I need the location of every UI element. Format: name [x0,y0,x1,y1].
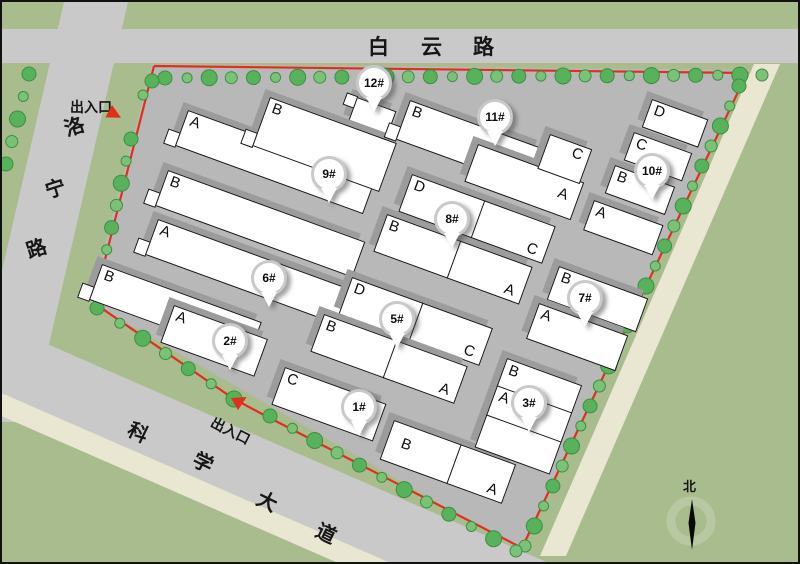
building-section-label: A [497,389,512,407]
tree-icon [402,71,414,83]
tree-icon [182,73,192,83]
tree-icon [510,545,522,557]
tree-icon [115,318,125,328]
north-label: 北 [683,480,696,493]
tree-icon [201,70,217,86]
building-divider [447,444,462,484]
tree-icon [556,460,568,472]
tree-icon [447,72,457,82]
tree-icon [732,79,746,93]
tree-icon [423,70,437,84]
tree-icon [624,71,634,81]
tree-icon [307,433,323,449]
tree-icon [105,221,119,235]
tree-icon [688,181,698,191]
tree-icon [335,70,349,84]
tree-icon [512,69,526,83]
tree-icon [18,92,28,102]
tree-icon [113,175,129,191]
tree-icon [181,362,195,376]
building-section-label: C [285,371,300,389]
tree-icon [725,101,735,111]
tree-icon [287,423,297,433]
map-pin-1: 1# [341,389,377,425]
tree-icon [263,409,277,423]
tree-icon [526,518,542,534]
tree-icon [331,447,343,459]
tree-icon [110,199,122,211]
tree-icon [467,68,483,84]
entrance-label-west: 出入口 [70,100,112,114]
tree-icon [138,90,148,100]
building-section-label: D [352,281,367,299]
building-section-label: D [652,103,667,121]
tree-icon [160,348,172,360]
building-section-label: B [270,101,285,119]
map-pin-12: 12# [356,65,392,101]
tree-icon [377,472,387,482]
map-pin-8: 8# [434,201,470,237]
tree-icon [675,198,691,214]
tree-icon [124,132,138,146]
tree-icon [579,70,591,82]
building-section-label: A [485,481,500,499]
tree-icon [555,68,571,84]
tree-icon [396,482,412,498]
tree-icon [536,71,546,81]
tree-icon [442,507,456,521]
tree-icon [6,136,18,148]
site-plan-map: ABBACDCBADCBABABADCBABACBABA 12#9#11#10#… [0,0,800,564]
tree-icon [290,69,306,85]
road-name-baiyun-char: 白 [368,37,389,58]
building-section-label: A [502,281,517,299]
tree-icon [756,69,768,81]
building-section-label: A [539,307,554,325]
building-section-label: A [158,223,173,241]
map-pin-5: 5# [379,301,415,337]
map-pin-11: 11# [477,99,513,135]
tree-icon [705,140,717,152]
tree-icon [121,156,131,166]
tree-icon [668,69,680,81]
road-baiyun [2,29,800,63]
tree-icon [271,72,281,82]
tree-icon [713,70,723,80]
tree-icon [246,71,260,85]
tree-icon [225,72,237,84]
tree-icon [206,379,216,389]
tree-icon [421,496,433,508]
building-section-label: C [634,136,649,154]
map-pin-2: 2# [212,323,248,359]
building-section-label: A [556,185,571,203]
tree-icon [353,458,367,472]
road-name-baiyun-char: 路 [473,37,494,58]
building-section-label: B [399,436,414,454]
tree-icon [712,118,728,134]
tree-icon [668,220,680,232]
building-section-label: A [437,380,452,398]
tree-icon [638,278,654,294]
tree-icon [135,330,151,346]
building-section-label: B [168,174,183,192]
tree-icon [650,261,660,271]
tree-icon [695,159,709,173]
tree-icon [583,399,597,413]
map-pin-7: 7# [567,280,603,316]
building-section-label: C [524,240,539,258]
building-section-label: C [462,342,477,360]
building-section-label: B [506,363,521,381]
tree-icon [22,67,36,81]
tree-icon [658,239,672,253]
tree-icon [643,68,659,84]
map-pin-3: 3# [511,385,547,421]
tree-icon [564,438,580,454]
tree-icon [593,380,605,392]
tree-icon [539,501,549,511]
tree-icon [158,71,172,85]
tree-icon [466,522,476,532]
tree-icon [600,69,614,83]
tree-icon [546,479,560,493]
building-section-label: A [594,204,609,222]
building-section-label: A [188,114,203,132]
building-section-label: B [410,104,425,122]
road-name-baiyun-char: 云 [421,37,442,58]
building-section-label: A [174,309,189,327]
tree-icon [2,157,13,171]
building-section-label: D [412,178,427,196]
tree-icon [576,421,586,431]
building-divider [470,200,485,238]
tree-icon [145,74,159,88]
building-section-label: B [387,218,402,236]
map-pin-9: 9# [311,156,347,192]
map-pin-6: 6# [251,260,287,296]
building-section-label: B [615,169,630,187]
tree-icon [10,111,26,127]
tree-icon [491,70,503,82]
building-section-label: C [570,145,585,163]
building-section-label: B [102,268,117,286]
building-section-label: B [324,318,339,336]
map-pin-10: 10# [634,153,670,189]
tree-icon [689,68,703,82]
tree-icon [102,245,112,255]
tree-icon [486,531,502,547]
tree-icon [314,71,326,83]
